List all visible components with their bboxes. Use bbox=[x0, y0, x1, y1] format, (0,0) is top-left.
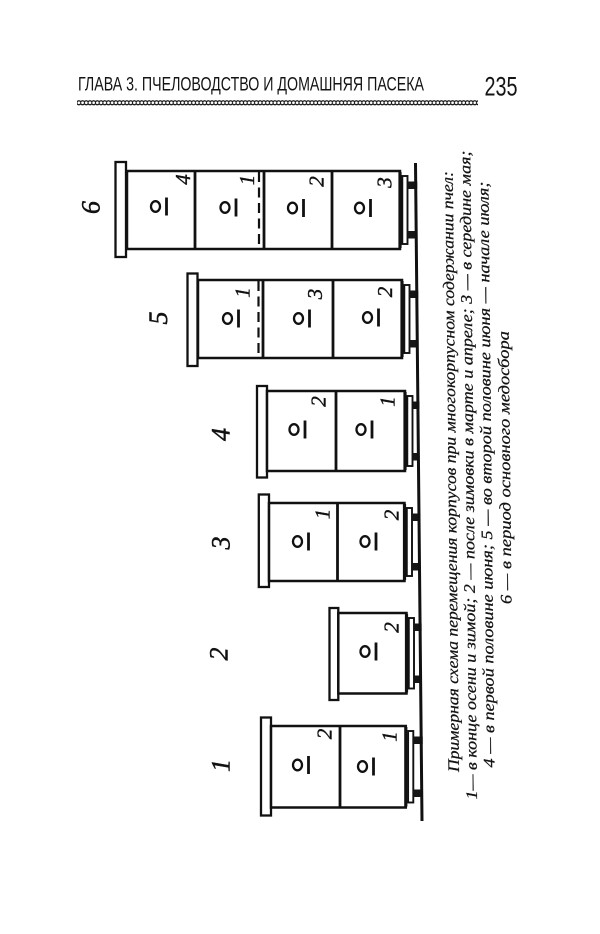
svg-text:1: 1 bbox=[231, 287, 255, 298]
svg-text:ГЛАВА 3. ПЧЕЛОВОДСТВО И ДОМАШН: ГЛАВА 3. ПЧЕЛОВОДСТВО И ДОМАШНЯЯ ПАСЕКА bbox=[78, 74, 424, 96]
svg-text:6 — в период основного медосбо: 6 — в период основного медосбора bbox=[496, 331, 516, 604]
svg-text:1: 1 bbox=[311, 509, 335, 520]
svg-text:1: 1 bbox=[235, 175, 259, 186]
svg-text:2: 2 bbox=[313, 728, 337, 739]
svg-text:2: 2 bbox=[380, 509, 404, 520]
svg-text:235: 235 bbox=[485, 72, 518, 102]
svg-text:6: 6 bbox=[77, 201, 106, 214]
svg-text:1: 1 bbox=[207, 759, 236, 772]
svg-text:2: 2 bbox=[373, 286, 397, 297]
svg-text:4: 4 bbox=[171, 174, 195, 185]
svg-text:2: 2 bbox=[307, 396, 331, 407]
svg-text:2: 2 bbox=[205, 648, 234, 661]
svg-text:3: 3 bbox=[207, 537, 236, 551]
svg-text:2: 2 bbox=[305, 176, 329, 187]
svg-text:3: 3 bbox=[373, 177, 397, 189]
svg-text:5: 5 bbox=[144, 312, 173, 325]
svg-text:3: 3 bbox=[303, 289, 327, 301]
svg-text:2: 2 bbox=[380, 622, 404, 633]
svg-text:1: 1 bbox=[378, 731, 402, 742]
svg-text:4: 4 bbox=[207, 428, 236, 441]
svg-text:1: 1 bbox=[376, 396, 400, 407]
